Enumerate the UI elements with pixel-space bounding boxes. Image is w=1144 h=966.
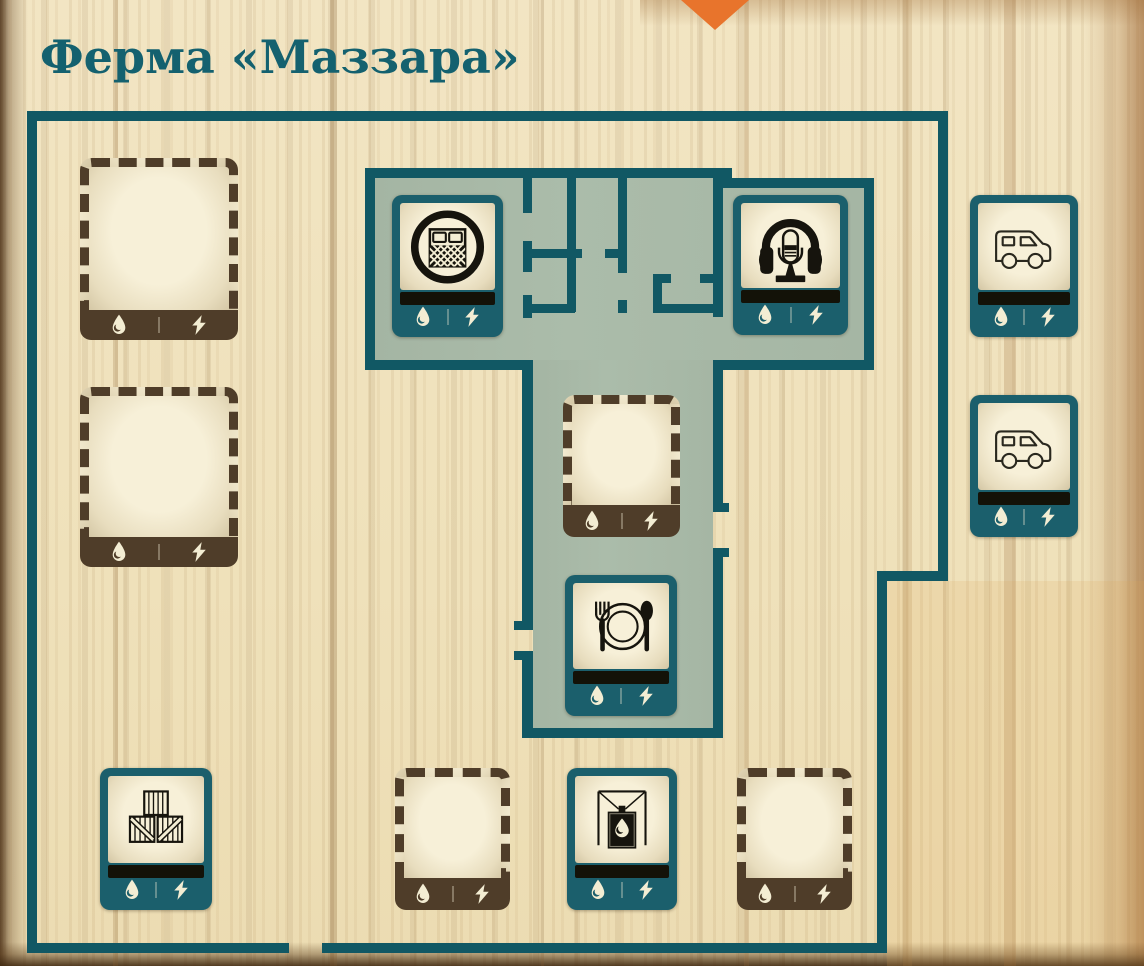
bar-divider: [158, 544, 160, 560]
water-drop-icon: [414, 882, 432, 906]
bar-divider: [794, 886, 796, 902]
room-art-panel: [741, 203, 840, 288]
utility-bar: [400, 305, 495, 329]
water-drop-icon: [123, 878, 141, 902]
radio-icon: [746, 205, 835, 287]
bar-divider: [158, 317, 160, 333]
room-art-panel: [573, 583, 669, 669]
utility-bar: [978, 505, 1070, 529]
room-art-panel: [978, 203, 1070, 290]
water-drop-icon: [583, 509, 601, 533]
slot-empty-left-middle[interactable]: [80, 387, 238, 567]
tile-name-strip: [741, 290, 840, 303]
van-icon: [983, 205, 1065, 289]
tile-name-strip: [978, 292, 1070, 305]
bar-divider: [790, 307, 792, 323]
utility-bar: [395, 878, 510, 910]
lightning-bolt-icon: [172, 879, 190, 901]
bar-divider: [447, 309, 449, 325]
water-drop-icon: [110, 313, 128, 337]
room-art-panel: [978, 403, 1070, 490]
lightning-bolt-icon: [190, 541, 208, 563]
room-dining[interactable]: [565, 575, 677, 716]
water-drop-icon: [588, 684, 606, 708]
utility-bar: [575, 878, 669, 902]
room-storage-crates[interactable]: [100, 768, 212, 910]
lightning-bolt-icon: [1039, 506, 1057, 528]
slot-empty-bottom-right[interactable]: [737, 768, 852, 910]
bar-divider: [1023, 309, 1025, 325]
lightning-bolt-icon: [807, 304, 825, 326]
lightning-bolt-icon: [1039, 306, 1057, 328]
van-icon: [983, 405, 1065, 489]
room-water-collector[interactable]: [567, 768, 677, 910]
lightning-bolt-icon: [637, 879, 655, 901]
bar-divider: [1023, 509, 1025, 525]
crates-icon: [113, 778, 199, 862]
utility-bar: [573, 684, 669, 708]
lightning-bolt-icon: [642, 510, 660, 532]
empty-slot-outline: [563, 395, 680, 505]
utility-bar: [741, 303, 840, 327]
dining-icon: [578, 585, 664, 668]
bar-divider: [620, 688, 622, 704]
bar-divider: [452, 886, 454, 902]
water-collector-icon: [580, 778, 664, 862]
water-drop-icon: [992, 505, 1010, 529]
game-map-screen: Ферма «Маззара»: [0, 0, 1144, 966]
lightning-bolt-icon: [473, 883, 491, 905]
room-bedroom[interactable]: [392, 195, 503, 337]
utility-bar: [80, 310, 238, 340]
water-drop-icon: [992, 305, 1010, 329]
lightning-bolt-icon: [815, 883, 833, 905]
room-art-panel: [108, 776, 204, 863]
water-drop-icon: [414, 305, 432, 329]
slot-empty-left-top[interactable]: [80, 158, 238, 340]
empty-slot-outline: [80, 158, 238, 310]
tile-name-strip: [978, 492, 1070, 505]
utility-bar: [563, 505, 680, 537]
tile-name-strip: [400, 292, 495, 305]
bed-icon: [405, 205, 490, 289]
utility-bar: [108, 878, 204, 902]
slot-empty-corridor[interactable]: [563, 395, 680, 537]
tile-name-strip: [575, 865, 669, 878]
vehicle-van-top[interactable]: [970, 195, 1078, 337]
slot-empty-bottom-left[interactable]: [395, 768, 510, 910]
water-drop-icon: [756, 303, 774, 327]
lightning-bolt-icon: [637, 685, 655, 707]
tile-name-strip: [573, 671, 669, 684]
tile-name-strip: [108, 865, 204, 878]
room-art-panel: [400, 203, 495, 290]
utility-bar: [978, 305, 1070, 329]
lightning-bolt-icon: [190, 314, 208, 336]
water-drop-icon: [589, 878, 607, 902]
water-drop-icon: [110, 540, 128, 564]
utility-bar: [737, 878, 852, 910]
room-art-panel: [575, 776, 669, 863]
water-drop-icon: [756, 882, 774, 906]
vehicle-van-bottom[interactable]: [970, 395, 1078, 537]
room-radio[interactable]: [733, 195, 848, 335]
bar-divider: [155, 882, 157, 898]
empty-slot-outline: [737, 768, 852, 878]
empty-slot-outline: [80, 387, 238, 537]
slot-layer: [0, 0, 1144, 966]
utility-bar: [80, 537, 238, 567]
lightning-bolt-icon: [463, 306, 481, 328]
bar-divider: [621, 513, 623, 529]
empty-slot-outline: [395, 768, 510, 878]
bar-divider: [621, 882, 623, 898]
